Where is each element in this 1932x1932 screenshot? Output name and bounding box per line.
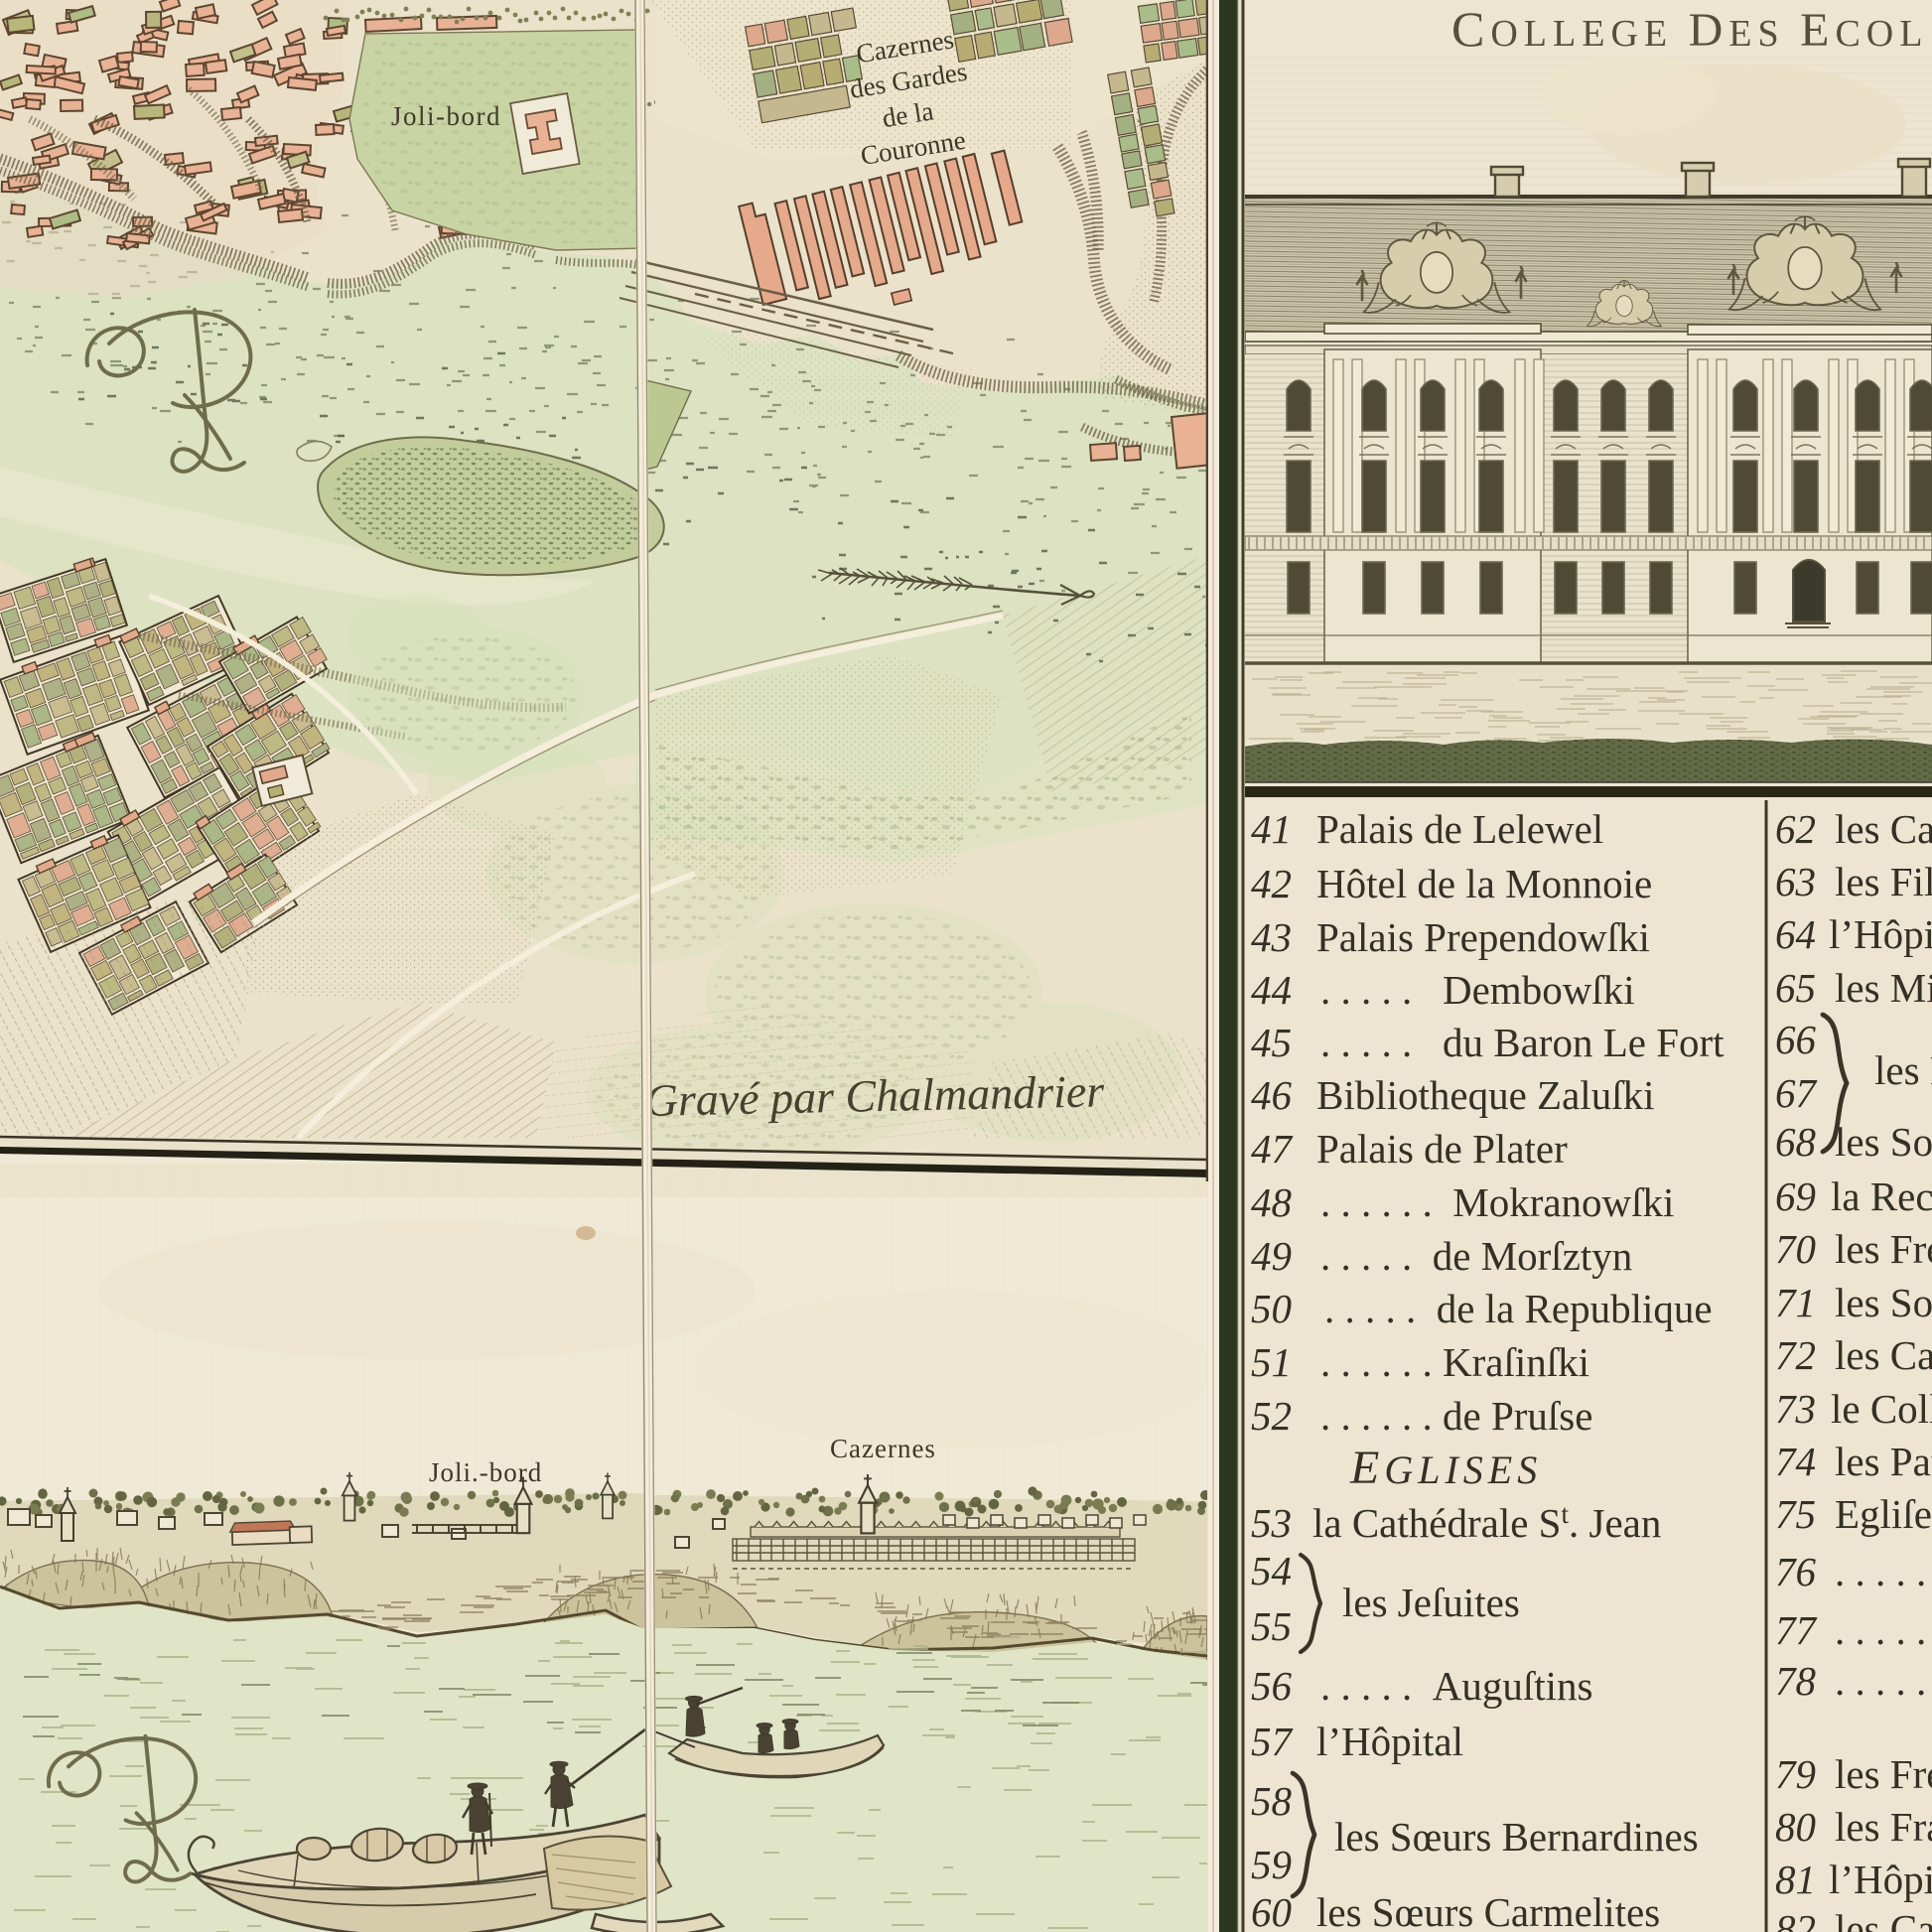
- svg-text:les Fre: les Fre: [1835, 1226, 1932, 1272]
- svg-text:59: 59: [1251, 1842, 1292, 1887]
- svg-text:80: 80: [1775, 1804, 1816, 1850]
- svg-text:47: 47: [1251, 1126, 1294, 1172]
- svg-text:. . . . . . Mokranowſki: . . . . . . Mokranowſki: [1320, 1179, 1674, 1225]
- svg-text:. . . . .: . . . . .: [1835, 1549, 1926, 1594]
- svg-text:68: 68: [1775, 1119, 1817, 1165]
- svg-text:Joli-bord: Joli-bord: [391, 101, 501, 131]
- svg-text:52: 52: [1251, 1393, 1292, 1439]
- svg-text:65: 65: [1775, 965, 1816, 1011]
- svg-text:51: 51: [1251, 1339, 1292, 1385]
- svg-text:les Freres: les Freres: [1874, 1047, 1932, 1093]
- svg-text:71: 71: [1775, 1280, 1816, 1325]
- svg-text:les Paulins: les Paulins: [1835, 1439, 1932, 1484]
- svg-text:48: 48: [1251, 1179, 1293, 1225]
- svg-text:62: 62: [1775, 806, 1816, 852]
- svg-text:. . . . . de Morſztyn: . . . . . de Morſztyn: [1320, 1233, 1632, 1279]
- svg-text:l’Hôpital: l’Hôpital: [1316, 1719, 1463, 1764]
- svg-text:les Filles: les Filles: [1835, 859, 1932, 904]
- svg-text:53: 53: [1251, 1500, 1292, 1546]
- svg-text:41: 41: [1251, 806, 1292, 852]
- svg-text:. . . . . . Kraſinſki: . . . . . . Kraſinſki: [1320, 1339, 1589, 1385]
- svg-text:les Soeurs: les Soeurs: [1835, 1119, 1932, 1165]
- svg-text:Cazernes: Cazernes: [830, 1434, 936, 1463]
- svg-text:les Capucins: les Capucins: [1835, 1332, 1932, 1378]
- svg-text:Egliſe de: Egliſe de: [1835, 1491, 1932, 1537]
- svg-text:57: 57: [1251, 1719, 1294, 1764]
- svg-text:74: 74: [1775, 1439, 1816, 1484]
- svg-text:les Soeurs: les Soeurs: [1835, 1280, 1932, 1325]
- svg-text:56: 56: [1251, 1663, 1293, 1709]
- svg-text:l’Hôpital: l’Hôpital: [1829, 911, 1932, 957]
- svg-text:les Sœurs Bernardines: les Sœurs Bernardines: [1334, 1814, 1699, 1860]
- svg-text:49: 49: [1251, 1233, 1292, 1279]
- svg-text:44: 44: [1251, 967, 1292, 1013]
- svg-text:78: 78: [1775, 1658, 1817, 1704]
- svg-text:63: 63: [1775, 859, 1816, 904]
- svg-text:75: 75: [1775, 1491, 1816, 1537]
- svg-text:les Franciſc: les Franciſc: [1835, 1804, 1932, 1850]
- svg-text:60: 60: [1251, 1889, 1292, 1932]
- svg-text:Palais de Plater: Palais de Plater: [1316, 1126, 1568, 1172]
- svg-text:. . . . . Dembowſki: . . . . . Dembowſki: [1320, 967, 1635, 1013]
- svg-text:Joli.-bord: Joli.-bord: [429, 1457, 542, 1487]
- svg-text:76: 76: [1775, 1549, 1817, 1594]
- svg-text:82: 82: [1775, 1906, 1816, 1932]
- svg-text:. . . . . du Baron Le Fort: . . . . . du Baron Le Fort: [1320, 1020, 1725, 1065]
- svg-text:EGLISES: EGLISES: [1349, 1442, 1542, 1494]
- svg-text:Palais de Lelewel: Palais de Lelewel: [1316, 806, 1603, 852]
- svg-text:les Sœurs Carmelites: les Sœurs Carmelites: [1316, 1889, 1660, 1932]
- svg-text:55: 55: [1251, 1603, 1292, 1649]
- svg-text:Bibliotheque Zaluſki: Bibliotheque Zaluſki: [1316, 1072, 1654, 1118]
- svg-text:le College: le College: [1831, 1386, 1932, 1432]
- svg-text:72: 72: [1775, 1332, 1816, 1378]
- svg-text:42: 42: [1251, 861, 1292, 906]
- svg-text:70: 70: [1775, 1226, 1816, 1272]
- svg-text:79: 79: [1775, 1751, 1816, 1797]
- svg-text:les Carmes: les Carmes: [1835, 806, 1932, 852]
- svg-text:Hôtel de la Monnoie: Hôtel de la Monnoie: [1316, 861, 1652, 906]
- svg-text:81: 81: [1775, 1857, 1816, 1902]
- svg-text:. . . . . de la Republique: . . . . . de la Republique: [1324, 1286, 1713, 1331]
- svg-text:54: 54: [1251, 1548, 1292, 1593]
- svg-text:43: 43: [1251, 914, 1292, 960]
- svg-text:46: 46: [1251, 1072, 1293, 1118]
- svg-text:les Jeſuites: les Jeſuites: [1342, 1580, 1520, 1625]
- svg-text:. . . . .: . . . . .: [1835, 1658, 1926, 1704]
- svg-text:. . . . . . de Pruſse: . . . . . . de Pruſse: [1320, 1393, 1592, 1439]
- svg-text:69: 69: [1775, 1173, 1816, 1219]
- svg-text:les Miſsion: les Miſsion: [1835, 965, 1932, 1011]
- svg-text:. . . . .: . . . . .: [1835, 1607, 1926, 1653]
- svg-text:la Recolte: la Recolte: [1831, 1173, 1932, 1219]
- svg-text:les Freres: les Freres: [1835, 1751, 1932, 1797]
- svg-text:l’Hôpital: l’Hôpital: [1829, 1857, 1932, 1902]
- svg-text:Gravé par Chalmandrier: Gravé par Chalmandrier: [644, 1065, 1106, 1126]
- svg-text:64: 64: [1775, 911, 1816, 957]
- svg-text:73: 73: [1775, 1386, 1816, 1432]
- svg-text:. . . . . Auguſtins: . . . . . Auguſtins: [1320, 1663, 1593, 1709]
- svg-text:50: 50: [1251, 1286, 1292, 1331]
- svg-text:Palais Prependowſki: Palais Prependowſki: [1316, 914, 1650, 960]
- svg-text:77: 77: [1775, 1607, 1818, 1653]
- svg-text:66: 66: [1775, 1017, 1817, 1062]
- svg-text:la Cathédrale St. Jean: la Cathédrale St. Jean: [1312, 1499, 1661, 1546]
- svg-text:67: 67: [1775, 1070, 1818, 1116]
- svg-text:58: 58: [1251, 1778, 1293, 1824]
- svg-text:les Car: les Car: [1835, 1906, 1932, 1932]
- svg-text:45: 45: [1251, 1020, 1292, 1065]
